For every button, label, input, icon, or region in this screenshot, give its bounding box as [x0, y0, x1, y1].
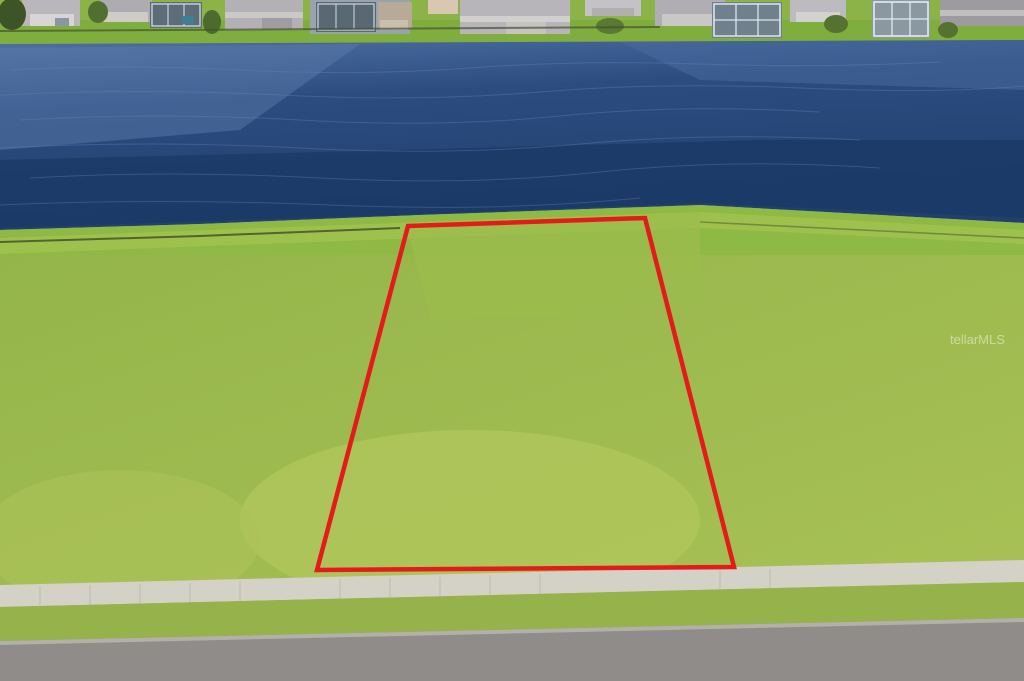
svg-text:tellarMLS: tellarMLS [950, 332, 1005, 347]
